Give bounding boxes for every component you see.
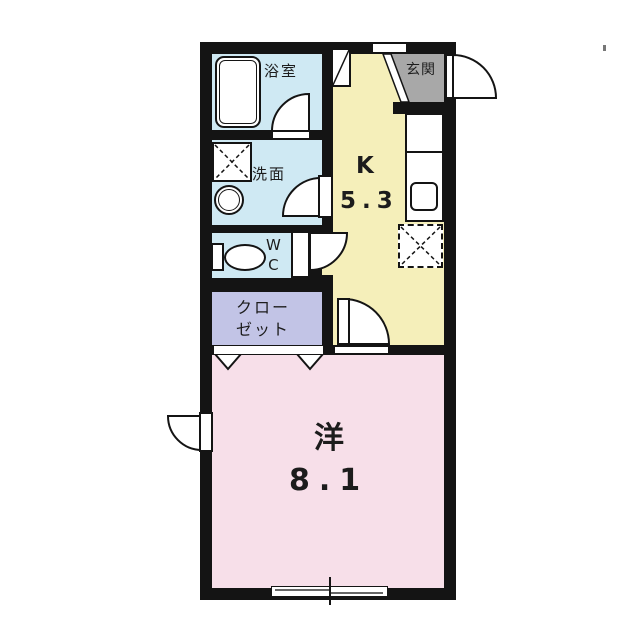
window-pane-line bbox=[275, 589, 330, 591]
west-exterior-door-leaf bbox=[199, 412, 213, 452]
print-artifact-dot bbox=[603, 45, 606, 51]
washroom-door-leaf bbox=[318, 175, 333, 218]
kitchen-counter-icon bbox=[405, 113, 444, 222]
refrigerator-space-icon bbox=[398, 224, 443, 268]
entrance-door-leaf bbox=[445, 54, 454, 99]
wall-divider-lower bbox=[322, 275, 333, 355]
wall-wc-closet bbox=[212, 278, 333, 292]
wall-wc-right bbox=[310, 233, 322, 278]
entrance-door-swing-icon bbox=[453, 55, 496, 98]
kitchen-door-leaf bbox=[337, 298, 350, 345]
shoe-cabinet-icon bbox=[331, 48, 351, 87]
west-exterior-door-swing-icon bbox=[168, 416, 202, 450]
closet-folding-door-rail bbox=[213, 345, 324, 355]
washroom-label: 洗面 bbox=[252, 163, 286, 184]
western-room-label: 洋 bbox=[314, 413, 344, 457]
entrance-label: 玄関 bbox=[406, 59, 436, 79]
window-pane-line bbox=[330, 592, 383, 594]
washing-machine-pan-icon bbox=[212, 142, 252, 182]
toilet-tank-icon bbox=[211, 243, 224, 271]
wc-label: W C bbox=[266, 235, 281, 275]
window-center-tick bbox=[329, 577, 331, 605]
wc-door-leaf bbox=[291, 231, 310, 278]
wall-washroom-wc bbox=[212, 225, 333, 233]
bathtub-icon bbox=[215, 56, 261, 128]
bathroom-door-leaf bbox=[271, 130, 311, 140]
western-room-size-label: 8.1 bbox=[289, 463, 369, 498]
closet-label: クロー ゼット bbox=[236, 297, 290, 341]
toilet-bowl-icon bbox=[224, 244, 266, 271]
bathtub-inner-line bbox=[219, 60, 257, 124]
wall-outer-left bbox=[200, 42, 212, 600]
top-window-icon bbox=[372, 43, 407, 53]
wall-outer-right bbox=[444, 42, 456, 600]
bathroom-label: 浴室 bbox=[264, 60, 298, 81]
kitchen-sink-icon bbox=[410, 182, 438, 211]
wall-outer-top bbox=[200, 42, 456, 54]
kitchen-door-threshold bbox=[333, 345, 390, 355]
kitchen-size-label: 5.3 bbox=[340, 188, 399, 214]
kitchen-label: K bbox=[356, 153, 374, 179]
wall-divider-mid bbox=[322, 217, 333, 233]
counter-divider-line bbox=[407, 151, 442, 153]
floor-plan: 浴室 洗面 W C クロー ゼット 玄関 K 5.3 洋 8.1 bbox=[0, 0, 640, 640]
wash-basin-inner-line bbox=[218, 189, 240, 211]
wash-basin-icon bbox=[214, 185, 244, 215]
